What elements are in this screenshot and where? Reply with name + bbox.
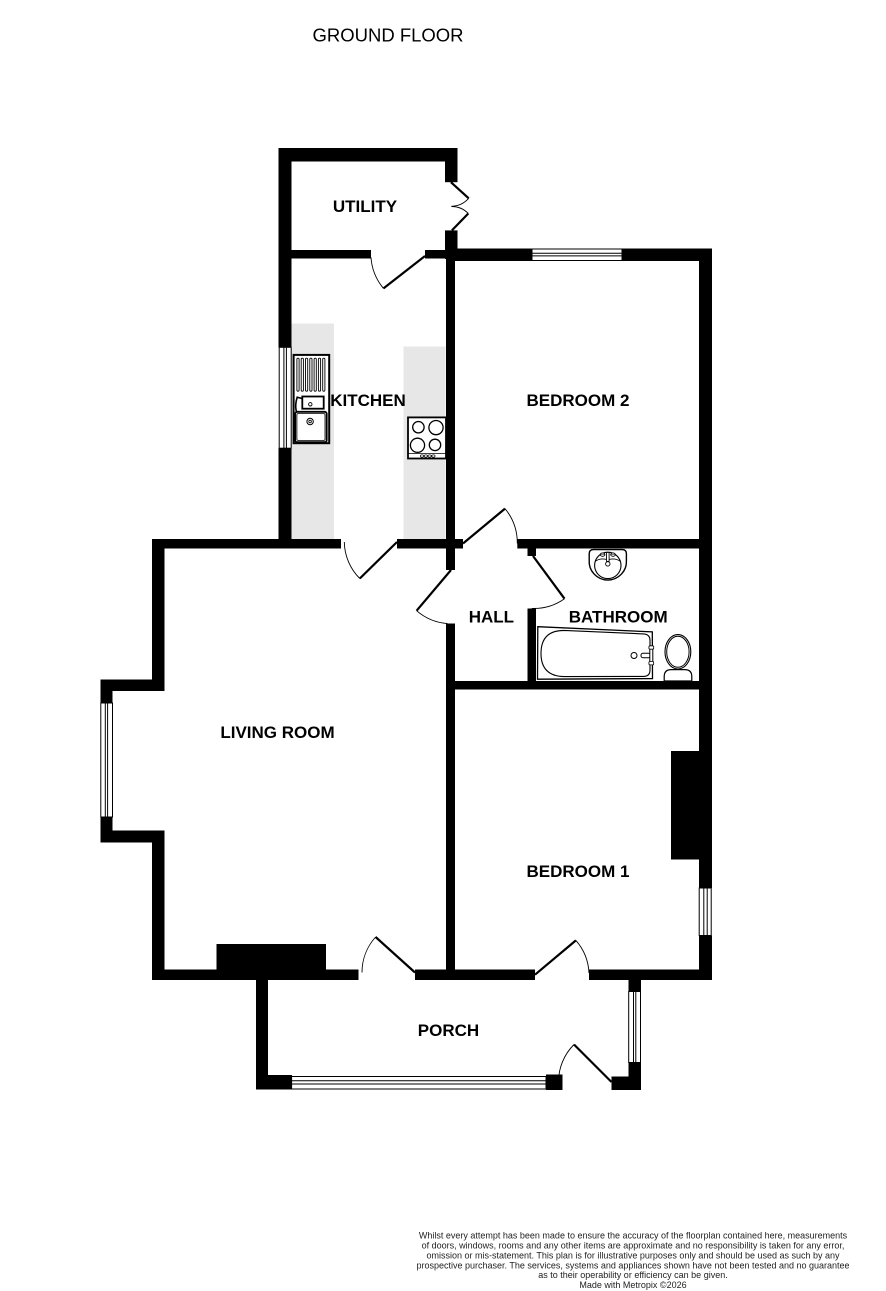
- svg-text:Made with Metropix ©2026: Made with Metropix ©2026: [579, 1280, 686, 1290]
- svg-text:omission or mis-statement. Thi: omission or mis-statement. This plan is …: [426, 1250, 840, 1260]
- svg-text:of doors, windows, rooms and a: of doors, windows, rooms and any other i…: [422, 1241, 845, 1251]
- svg-text:Whilst every attempt has been: Whilst every attempt has been made to en…: [419, 1231, 848, 1241]
- svg-text:PORCH: PORCH: [418, 1021, 479, 1040]
- svg-text:prospective purchaser. The ser: prospective purchaser. The services, sys…: [416, 1260, 849, 1270]
- svg-text:as to their operability or eff: as to their operability or efficiency ca…: [538, 1270, 727, 1280]
- svg-text:BEDROOM 1: BEDROOM 1: [527, 862, 630, 881]
- svg-text:GROUND FLOOR: GROUND FLOOR: [312, 25, 463, 46]
- svg-text:BEDROOM 2: BEDROOM 2: [527, 391, 630, 410]
- svg-text:UTILITY: UTILITY: [333, 197, 398, 216]
- svg-text:BATHROOM: BATHROOM: [569, 607, 668, 626]
- svg-text:LIVING ROOM: LIVING ROOM: [220, 723, 334, 742]
- svg-text:HALL: HALL: [469, 607, 514, 626]
- svg-text:KITCHEN: KITCHEN: [330, 391, 406, 410]
